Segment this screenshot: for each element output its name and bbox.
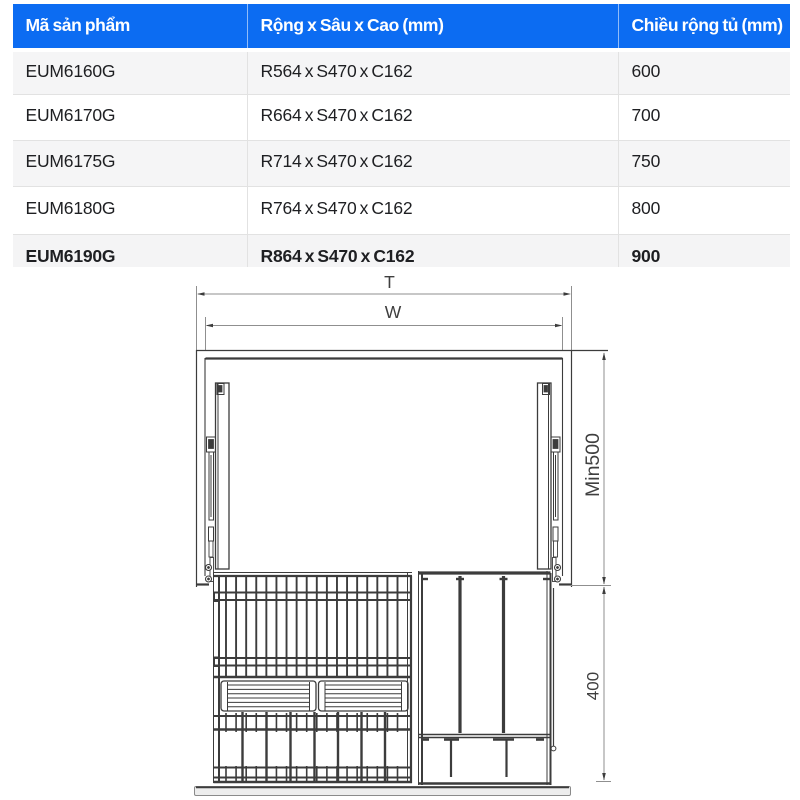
svg-text:W: W [385,302,402,322]
svg-text:Min500: Min500 [582,433,604,497]
svg-text:400: 400 [583,672,602,700]
svg-text:T: T [384,272,395,292]
